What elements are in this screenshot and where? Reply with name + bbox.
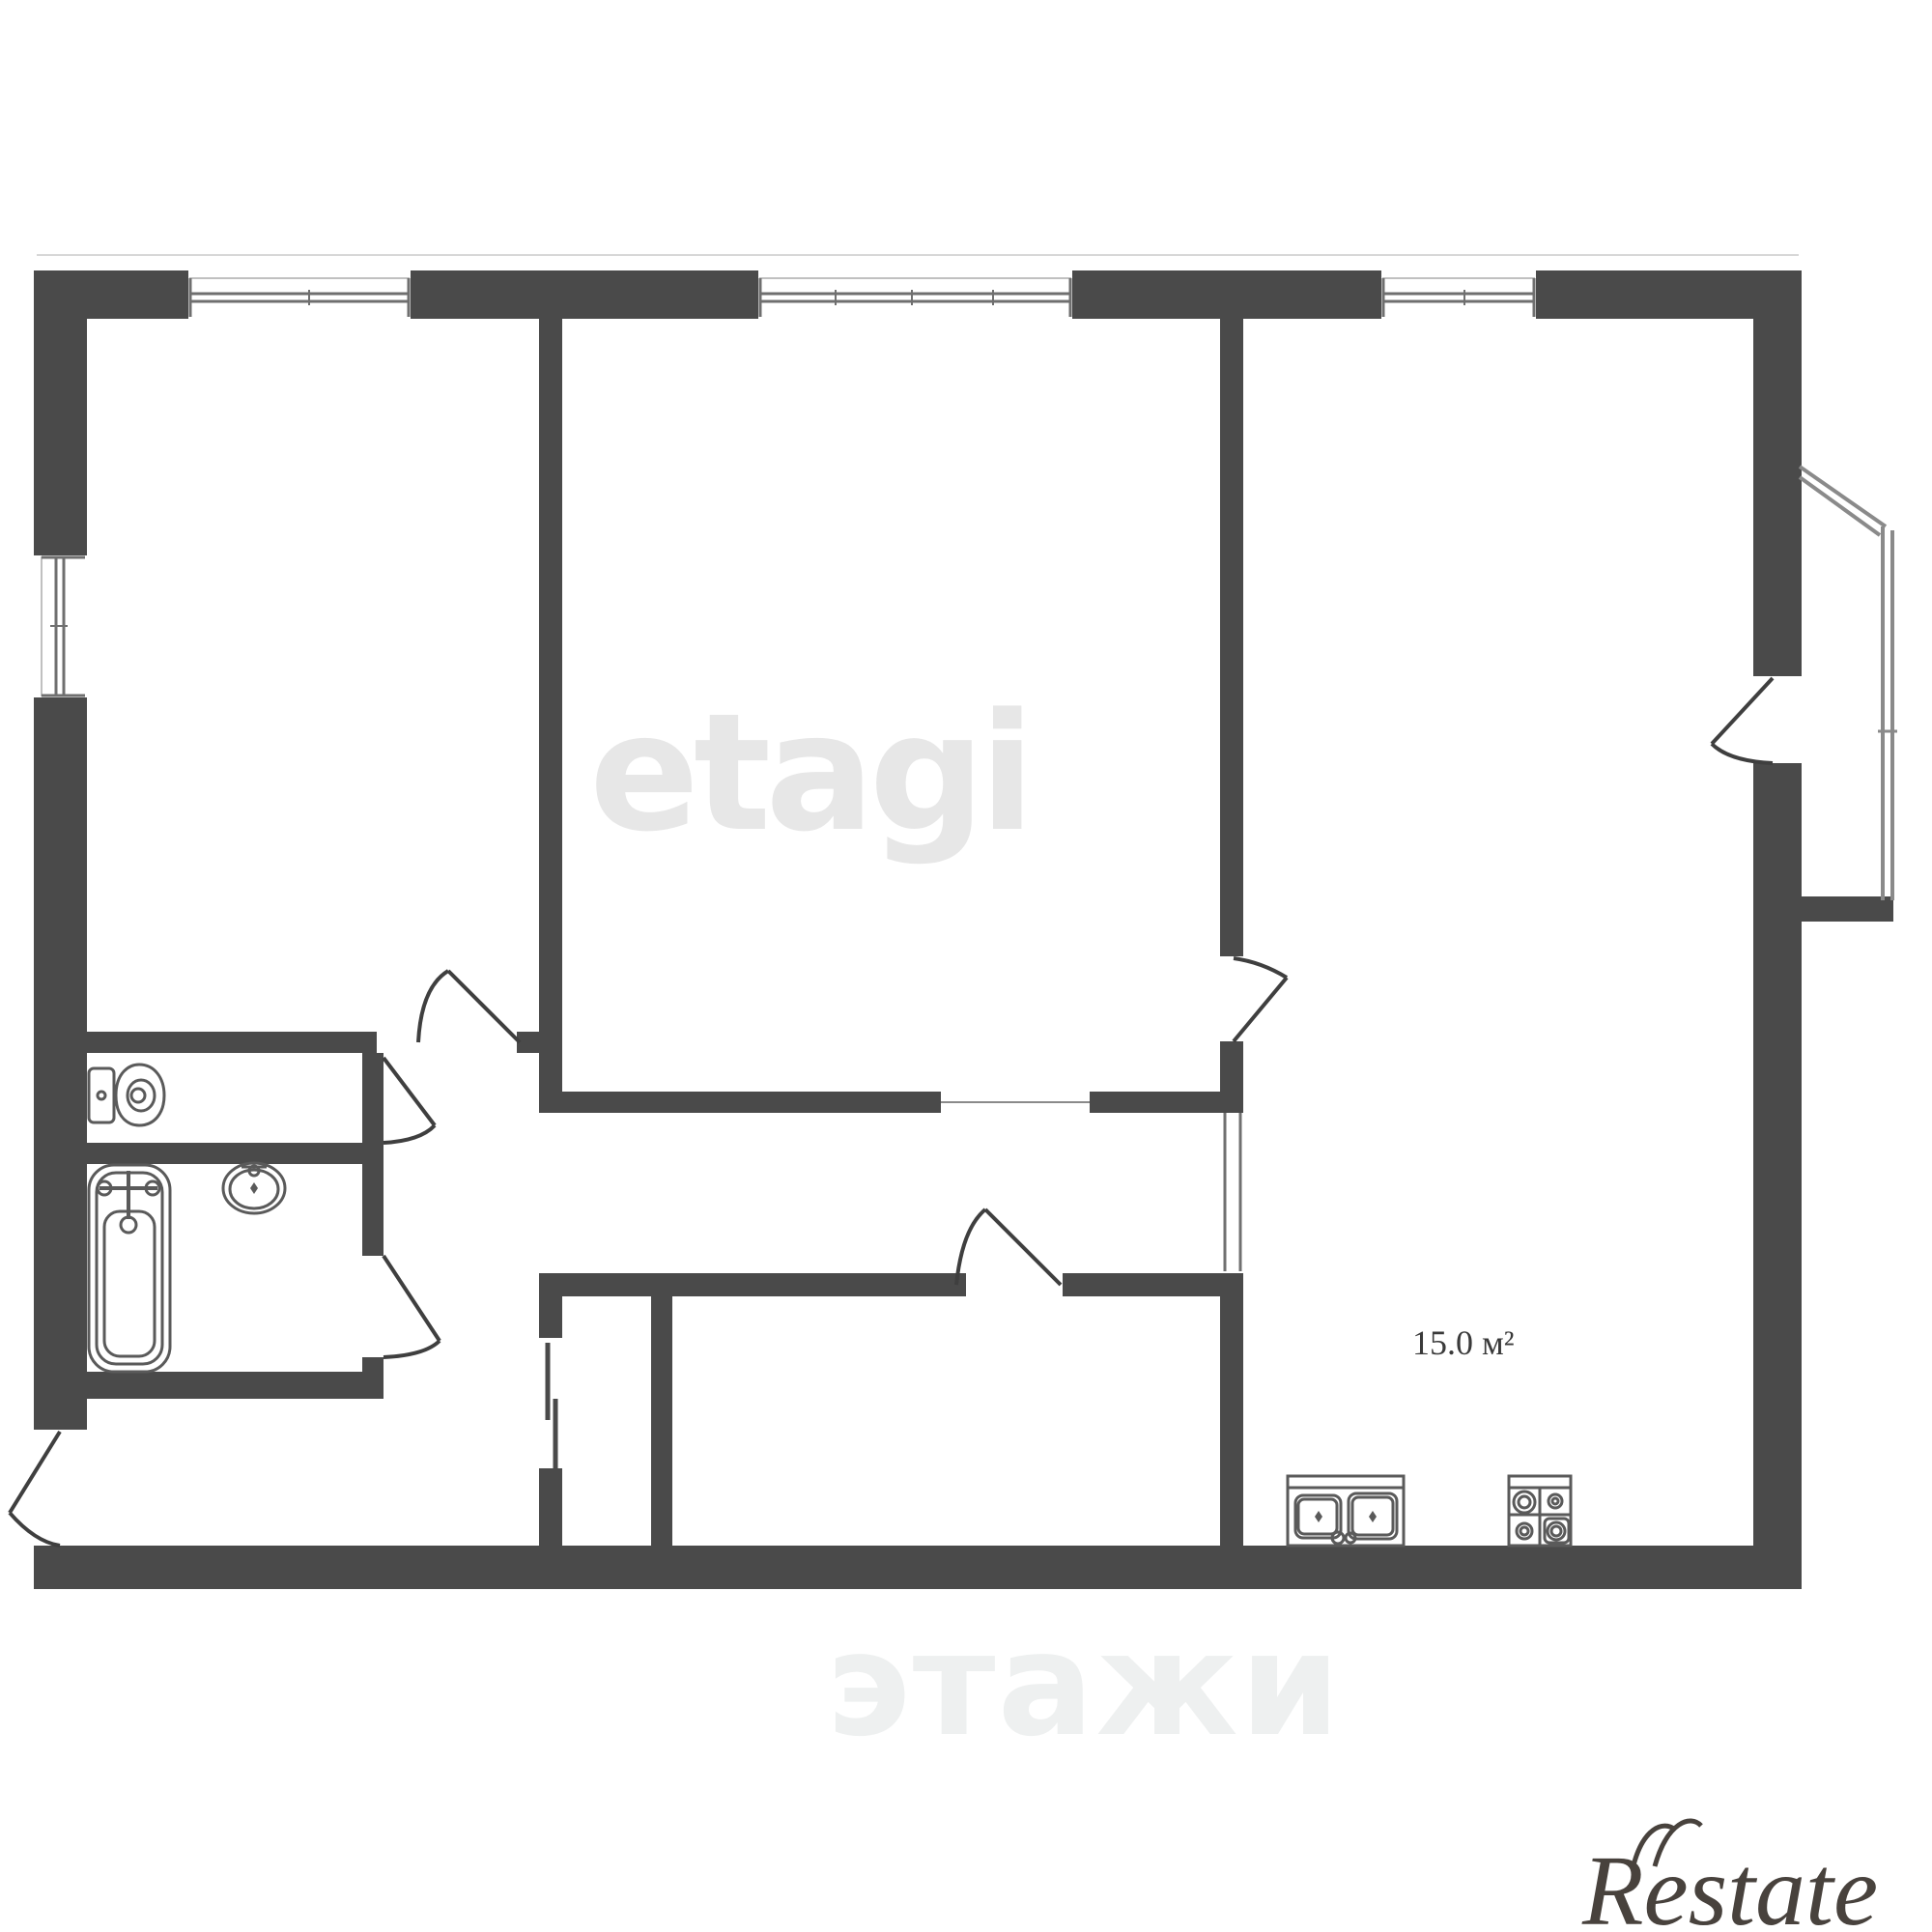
- door-arc-icon: [956, 1209, 1061, 1285]
- door-arc-icon: [384, 1256, 440, 1357]
- wall-wc-right: [362, 1053, 384, 1143]
- door-arc-icon: [384, 1058, 435, 1143]
- room-corridor: [562, 1113, 1220, 1273]
- toilet-icon: [89, 1065, 164, 1125]
- bathtub-icon: [89, 1165, 170, 1372]
- wall-leftroom-bottom: [87, 1032, 377, 1053]
- wash-sink-icon: [223, 1163, 285, 1213]
- wall-openings: [34, 270, 1802, 1546]
- opening-entrance: [34, 1430, 87, 1546]
- wall-exterior-left: [34, 270, 87, 1589]
- wall-bath-bottom: [87, 1372, 384, 1399]
- wall-closet-left-lower-stub: [539, 1468, 562, 1546]
- door-arc-icon: [418, 971, 520, 1042]
- wall-divider-middle-right-stub: [1220, 1041, 1243, 1092]
- wall-divider-middle-right: [1220, 319, 1243, 956]
- floorplan-canvas: etagi этажи: [0, 0, 1932, 1932]
- rooms: [87, 319, 1893, 1546]
- wall-leftroom-door-stub: [517, 1032, 562, 1053]
- watermark-etagi: etagi: [589, 678, 1029, 867]
- floorplan-page: etagi этажи: [0, 0, 1932, 1932]
- balcony-railing-icon: [1800, 467, 1897, 900]
- kitchen-area-label: 15.0 м²: [1412, 1323, 1515, 1362]
- wall-divider-left-middle: [539, 319, 562, 1113]
- wall-bath-right-upper: [362, 1164, 384, 1256]
- wall-corridor-bottom-right: [1063, 1273, 1243, 1296]
- room-balcony: [1802, 473, 1893, 918]
- wall-middleroom-bottom-left: [560, 1092, 941, 1113]
- room-right-bedroom: [1243, 319, 1753, 1092]
- wall-middleroom-bottom-right: [1090, 1092, 1243, 1113]
- wall-exterior-bottom: [34, 1546, 1802, 1589]
- stove-icon: [1509, 1476, 1571, 1546]
- wall-exterior-right: [1753, 270, 1802, 1589]
- walls: [34, 270, 1893, 1589]
- door-arc-icon: [1234, 958, 1287, 1041]
- wall-wc-bath-divider: [87, 1143, 384, 1164]
- wall-balcony-bottom-stub: [1802, 896, 1893, 922]
- room-hallway: [384, 1053, 539, 1546]
- wall-closet-right: [651, 1285, 672, 1546]
- room-closet: [562, 1296, 651, 1546]
- room-left-bedroom: [87, 319, 539, 1032]
- wall-corridor-bottom-left: [539, 1273, 966, 1296]
- room-storage: [672, 1296, 1220, 1546]
- fixtures: [89, 1065, 1571, 1546]
- watermark-ghost: этажи: [826, 1602, 1342, 1768]
- kitchen-sink-icon: [1288, 1476, 1404, 1546]
- wall-kitchen-left: [1220, 1296, 1243, 1546]
- logo-text: Restate: [1581, 1835, 1878, 1932]
- brand-logo: Restate: [1581, 1821, 1878, 1932]
- wall-closet-left-upper-stub: [539, 1273, 562, 1338]
